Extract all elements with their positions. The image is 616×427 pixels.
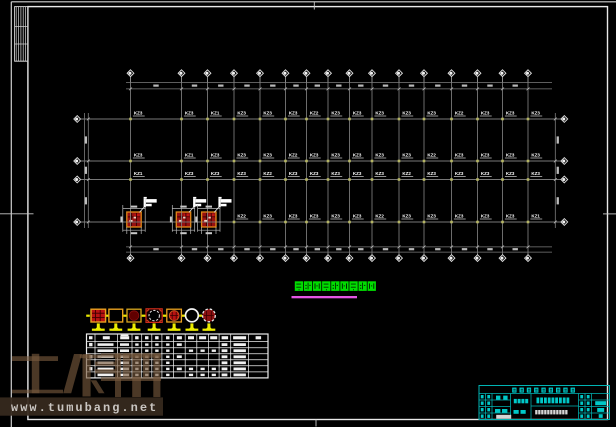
svg-text:KZ2: KZ2 — [310, 111, 319, 116]
svg-text:KZ3: KZ3 — [263, 153, 272, 158]
svg-text:KZ3: KZ3 — [455, 214, 464, 219]
svg-text:KZ3: KZ3 — [289, 111, 298, 116]
svg-text:KZ1: KZ1 — [134, 171, 143, 176]
svg-text:KZ3: KZ3 — [427, 171, 436, 176]
svg-text:KZ2: KZ2 — [263, 171, 272, 176]
svg-text:KZ3: KZ3 — [375, 111, 384, 116]
svg-text:KZ3: KZ3 — [353, 214, 362, 219]
svg-text:KZ3: KZ3 — [455, 153, 464, 158]
svg-text:KZ3: KZ3 — [481, 214, 490, 219]
svg-text:KZ1: KZ1 — [211, 111, 220, 116]
svg-text:KZ3: KZ3 — [375, 153, 384, 158]
svg-text:KZ3: KZ3 — [506, 214, 515, 219]
svg-text:KZ3: KZ3 — [310, 214, 319, 219]
svg-text:KZ2: KZ2 — [375, 214, 384, 219]
svg-text:KZ1: KZ1 — [531, 214, 540, 219]
svg-text:KZ3: KZ3 — [375, 171, 384, 176]
svg-text:KZ3: KZ3 — [331, 214, 340, 219]
svg-text:KZ3: KZ3 — [427, 214, 436, 219]
svg-text:KZ3: KZ3 — [481, 171, 490, 176]
svg-text:KZ3: KZ3 — [134, 153, 143, 158]
svg-text:KZ3: KZ3 — [289, 214, 298, 219]
svg-text:KZ3: KZ3 — [402, 153, 411, 158]
svg-text:KZ3: KZ3 — [531, 171, 540, 176]
svg-text:KZ3: KZ3 — [506, 111, 515, 116]
svg-text:KZ3: KZ3 — [455, 171, 464, 176]
svg-text:KZ3: KZ3 — [211, 171, 220, 176]
svg-text:KZ3: KZ3 — [310, 153, 319, 158]
svg-text:KZ3: KZ3 — [211, 153, 220, 158]
svg-text:KZ3: KZ3 — [353, 111, 362, 116]
svg-text:KZ3: KZ3 — [531, 111, 540, 116]
svg-text:KZ3: KZ3 — [331, 171, 340, 176]
svg-text:KZ3: KZ3 — [506, 171, 515, 176]
svg-text:KZ2: KZ2 — [237, 214, 246, 219]
svg-text:KZ3: KZ3 — [402, 111, 411, 116]
svg-text:KZ3: KZ3 — [331, 153, 340, 158]
svg-text:KZ2: KZ2 — [402, 171, 411, 176]
svg-text:KZ3: KZ3 — [289, 171, 298, 176]
svg-text:KZ3: KZ3 — [427, 111, 436, 116]
svg-text:KZ3: KZ3 — [237, 153, 246, 158]
svg-text:KZ3: KZ3 — [185, 111, 194, 116]
svg-text:KZ2: KZ2 — [455, 111, 464, 116]
svg-text:KZ3: KZ3 — [237, 171, 246, 176]
svg-text:KZ3: KZ3 — [310, 171, 319, 176]
svg-text:KZ3: KZ3 — [506, 153, 515, 158]
svg-text:KZ3: KZ3 — [263, 214, 272, 219]
svg-text:KZ3: KZ3 — [237, 111, 246, 116]
svg-text:KZ2: KZ2 — [427, 153, 436, 158]
svg-text:KZ1: KZ1 — [185, 153, 194, 158]
svg-text:KZ3: KZ3 — [402, 214, 411, 219]
svg-text:KZ3: KZ3 — [134, 111, 143, 116]
svg-text:www.tumubang.net: www.tumubang.net — [11, 401, 158, 415]
svg-text:KZ3: KZ3 — [331, 111, 340, 116]
svg-text:KZ3: KZ3 — [185, 171, 194, 176]
svg-text:KZ3: KZ3 — [353, 171, 362, 176]
svg-text:KZ3: KZ3 — [353, 153, 362, 158]
svg-text:KZ2: KZ2 — [289, 153, 298, 158]
svg-text:KZ3: KZ3 — [481, 111, 490, 116]
svg-text:KZ3: KZ3 — [531, 153, 540, 158]
svg-text:KZ3: KZ3 — [481, 153, 490, 158]
svg-text:KZ3: KZ3 — [263, 111, 272, 116]
